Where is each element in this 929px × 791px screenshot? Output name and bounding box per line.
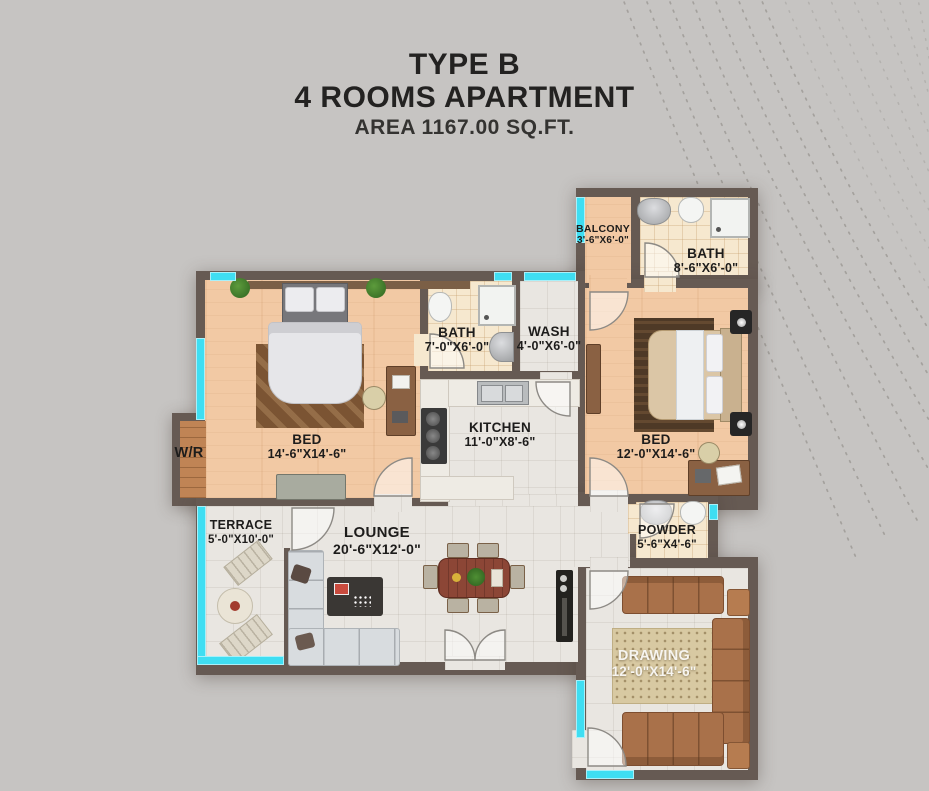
door-entry-right <box>475 630 505 660</box>
door-drawing-bottom <box>588 728 626 766</box>
door-bed2-hall <box>590 458 628 496</box>
door-kitchen <box>536 382 570 416</box>
floor-plan-page: TYPE B 4 ROOMS APARTMENT AREA 1167.00 SQ… <box>0 0 929 791</box>
door-arcs-layer <box>0 0 929 791</box>
room-label-drawing: DRAWING 12'-0"X14'-6" <box>594 648 714 679</box>
room-label-bed-1: BED 14'-6"X14'-6" <box>237 432 377 461</box>
door-drawing-top <box>590 571 628 609</box>
door-bed2-entry <box>590 292 628 330</box>
door-entry-left <box>445 630 475 660</box>
room-label-wash: WASH 4'-0"X6'-0" <box>509 324 589 353</box>
room-label-balcony: BALCONY 3'-6"X6'-0" <box>557 224 649 247</box>
door-bed1 <box>374 458 412 496</box>
room-label-lounge: LOUNGE 20'-6"X12'-0" <box>297 524 457 557</box>
room-label-kitchen: KITCHEN 11'-0"X8'-6" <box>440 420 560 449</box>
room-label-bath-2: BATH 7'-0"X6'-0" <box>413 325 501 354</box>
room-label-bath-1: BATH 8'-6"X6'-0" <box>646 246 766 275</box>
room-label-bed-2: BED 12'-0"X14'-6" <box>586 432 726 461</box>
room-label-powder: POWDER 5'-6"X4'-6" <box>607 523 727 552</box>
room-label-wr: W/R <box>163 446 215 461</box>
room-label-terrace: TERRACE 5'-0"X10'-0" <box>196 518 286 547</box>
